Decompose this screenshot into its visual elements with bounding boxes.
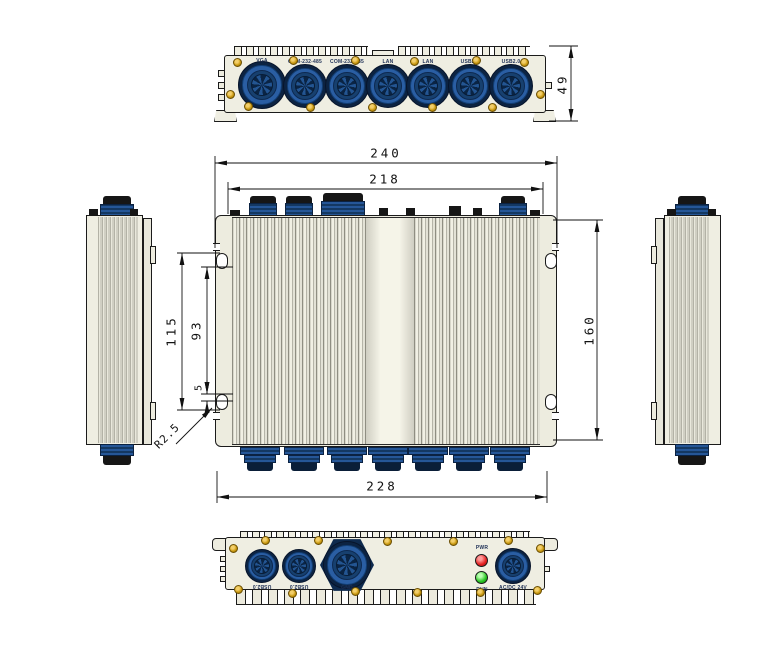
screw xyxy=(410,57,419,66)
connector-barrel xyxy=(408,447,448,455)
flange-tab xyxy=(150,246,156,264)
connector-barrel xyxy=(100,444,134,456)
connector-usb-front1 xyxy=(245,549,279,583)
corner-cap xyxy=(89,209,98,216)
connector-barrel xyxy=(368,447,408,455)
flange-tab xyxy=(651,246,657,264)
connector-lan2 xyxy=(406,64,450,108)
connector-cap xyxy=(286,196,312,203)
connector-cap xyxy=(103,196,131,204)
connector-com2 xyxy=(325,64,369,108)
connector-barrel xyxy=(327,447,367,455)
screw xyxy=(351,587,360,596)
dim-label-5: 5 xyxy=(194,385,205,391)
screw xyxy=(261,536,270,545)
heatsink-fin-edge xyxy=(236,590,536,605)
screw xyxy=(314,536,323,545)
connector-cap xyxy=(678,196,706,204)
connector-cap xyxy=(501,196,525,203)
heatsink-ribs xyxy=(669,217,709,443)
dim-label-228: 228 xyxy=(366,479,398,494)
connector-lan1 xyxy=(366,64,410,108)
connector-label: USB2.0 xyxy=(502,59,521,65)
connector-barrel xyxy=(453,455,485,463)
screw xyxy=(488,103,497,112)
screw xyxy=(289,56,298,65)
screw xyxy=(383,537,392,546)
screw xyxy=(351,56,360,65)
dim-label-218: 218 xyxy=(369,172,401,187)
screw xyxy=(413,588,422,597)
dim-label-r2-5: R2.5 xyxy=(152,421,183,452)
connector-com1 xyxy=(283,64,327,108)
screw xyxy=(533,586,542,595)
led-pwr xyxy=(475,554,488,567)
connector-barrel xyxy=(372,455,404,463)
flange-tab xyxy=(651,402,657,420)
corner-cap xyxy=(130,209,138,216)
dim-label-93: 93 xyxy=(189,319,204,340)
edge-notch xyxy=(218,94,225,101)
mount-slot xyxy=(216,394,228,410)
connector-barrel xyxy=(288,455,320,463)
screw xyxy=(428,103,437,112)
screw xyxy=(520,58,529,67)
mount-slot xyxy=(545,394,557,410)
connector-cap xyxy=(291,463,317,471)
connector-cap xyxy=(497,463,523,471)
connector-label: AC/DC 24V xyxy=(499,585,527,591)
connector-power xyxy=(495,548,531,584)
dim-label-49: 49 xyxy=(555,73,570,94)
screw xyxy=(233,58,242,67)
connector-usb2 xyxy=(489,64,533,108)
connector-barrel xyxy=(284,447,324,455)
edge-notch xyxy=(552,412,559,420)
screw xyxy=(229,544,238,553)
connector-cap xyxy=(323,193,363,201)
dim-label-115: 115 xyxy=(164,315,179,347)
connector-cap xyxy=(415,463,441,471)
connector-cap xyxy=(103,456,131,465)
mount-slot xyxy=(216,253,228,269)
edge-notch xyxy=(213,243,220,251)
edge-notch xyxy=(545,82,552,89)
connector-cap xyxy=(456,463,482,471)
connector-cap xyxy=(375,463,401,471)
led-label: PWR xyxy=(476,545,488,551)
edge-notch xyxy=(218,70,225,77)
connector-barrel xyxy=(490,447,530,455)
connector-label: VGA xyxy=(256,58,267,64)
connector-barrel xyxy=(244,455,276,463)
connector-usb1 xyxy=(448,64,492,108)
screw xyxy=(476,588,485,597)
connector-label: LAN xyxy=(423,59,434,65)
screw xyxy=(449,537,458,546)
connector-label: USB2.0 xyxy=(253,583,272,589)
connector-cap xyxy=(334,463,360,471)
flange-tab xyxy=(150,402,156,420)
screw xyxy=(288,589,297,598)
dim-label-240: 240 xyxy=(370,146,402,161)
connector-cap xyxy=(678,456,706,465)
connector-barrel xyxy=(449,447,489,455)
edge-notch xyxy=(220,566,226,572)
connector-barrel xyxy=(240,447,280,455)
connector-barrel xyxy=(412,455,444,463)
edge-notch xyxy=(213,412,220,420)
connector-cap xyxy=(247,463,273,471)
edge-notch xyxy=(544,566,550,572)
screw xyxy=(536,544,545,553)
edge-notch xyxy=(552,243,559,251)
connector-barrel xyxy=(675,444,709,456)
smooth-band xyxy=(366,218,414,444)
screw xyxy=(234,585,243,594)
corner-cap xyxy=(708,209,716,216)
connector-usb-front2 xyxy=(282,549,316,583)
connector-barrel xyxy=(494,455,526,463)
connector-barrel xyxy=(331,455,363,463)
screw xyxy=(244,102,253,111)
screw xyxy=(368,103,377,112)
screw xyxy=(536,90,545,99)
edge-notch xyxy=(220,556,226,562)
screw xyxy=(472,56,481,65)
dim-label-160: 160 xyxy=(582,314,597,346)
connector-label: LAN xyxy=(383,59,394,65)
drawing-canvas: VGA COM-232-485 COM-232-485 LAN LAN USB2… xyxy=(0,0,781,651)
heatsink-ribs xyxy=(98,217,138,443)
connector-cap xyxy=(250,196,276,203)
edge-notch xyxy=(220,576,226,582)
corner-cap xyxy=(667,209,676,216)
screw xyxy=(226,90,235,99)
led-run xyxy=(475,571,488,584)
screw xyxy=(306,103,315,112)
mount-slot xyxy=(545,253,557,269)
screw xyxy=(504,536,513,545)
edge-notch xyxy=(218,82,225,89)
